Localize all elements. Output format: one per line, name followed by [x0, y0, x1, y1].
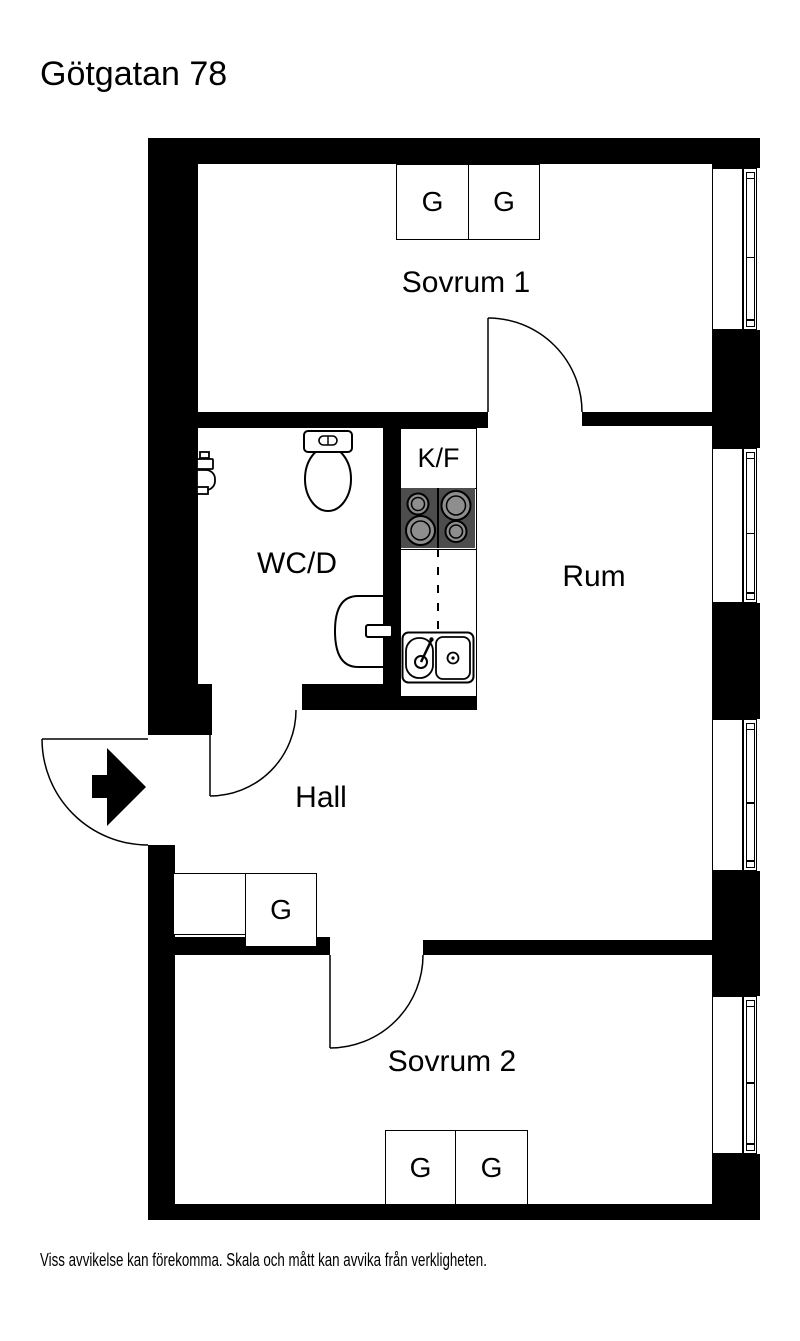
wall-hall-right	[423, 940, 712, 955]
wall-sovrum1-bottom-right	[582, 412, 712, 426]
wardrobe-label: G	[481, 1152, 503, 1184]
wardrobe-sovrum2-left: G	[385, 1130, 456, 1205]
counter-divider	[437, 549, 439, 631]
wardrobe-label: G	[410, 1152, 432, 1184]
wardrobe-label: G	[493, 186, 515, 218]
window-frame	[712, 168, 757, 330]
room-label-sovrum2: Sovrum 2	[377, 1045, 527, 1079]
wall-kitchen-bottom	[383, 697, 477, 710]
room-label-rum: Rum	[544, 560, 644, 594]
wall-left-upper	[148, 138, 198, 735]
room-label-sovrum1: Sovrum 1	[391, 266, 541, 300]
wall-sovrum1-bottom-left	[148, 412, 488, 428]
window-frame	[712, 448, 757, 603]
wardrobe-hall: G	[245, 873, 317, 947]
wardrobe-sovrum2-right: G	[455, 1130, 528, 1205]
window-icon	[712, 448, 760, 603]
window-frame	[712, 719, 757, 871]
toilet-icon	[304, 431, 352, 511]
entrance-door-swing-icon	[42, 739, 148, 845]
window-icon	[712, 996, 760, 1154]
page-title: Götgatan 78	[40, 55, 227, 94]
wall-top	[148, 138, 760, 164]
wardrobe-label: G	[270, 894, 292, 926]
sovrum1-door-swing-icon	[488, 318, 582, 412]
window-icon	[712, 719, 760, 871]
kitchen-sink-icon	[401, 631, 476, 684]
disclaimer-text: Viss avvikelse kan förekomma. Skala och …	[40, 1250, 487, 1271]
hall-cabinet	[173, 873, 246, 935]
kitchen-unit: K/F	[400, 428, 477, 697]
wall-bottom	[148, 1204, 760, 1220]
wardrobe-sovrum1-left: G	[396, 164, 469, 240]
kitchen-counter	[401, 549, 476, 631]
wardrobe-label: G	[422, 186, 444, 218]
fridge-freezer-box: K/F	[401, 429, 476, 489]
room-label-hall: Hall	[271, 781, 371, 815]
wardrobe-sovrum1-right: G	[468, 164, 540, 240]
laundry-tap-icon	[197, 452, 215, 494]
wall-wc-door-jamb	[198, 684, 212, 735]
wall-left-lower	[148, 845, 175, 1204]
sovrum2-door-swing-icon	[330, 955, 423, 1048]
floorplan-canvas: Götgatan 78 G G G G G	[0, 0, 800, 1341]
room-label-wcd: WC/D	[247, 547, 347, 581]
wall-wc-right	[383, 428, 400, 710]
stove-icon	[401, 488, 476, 550]
window-icon	[712, 168, 760, 330]
window-frame	[712, 996, 757, 1154]
kitchen-label: K/F	[417, 443, 459, 474]
entrance-arrow-icon	[92, 748, 146, 826]
